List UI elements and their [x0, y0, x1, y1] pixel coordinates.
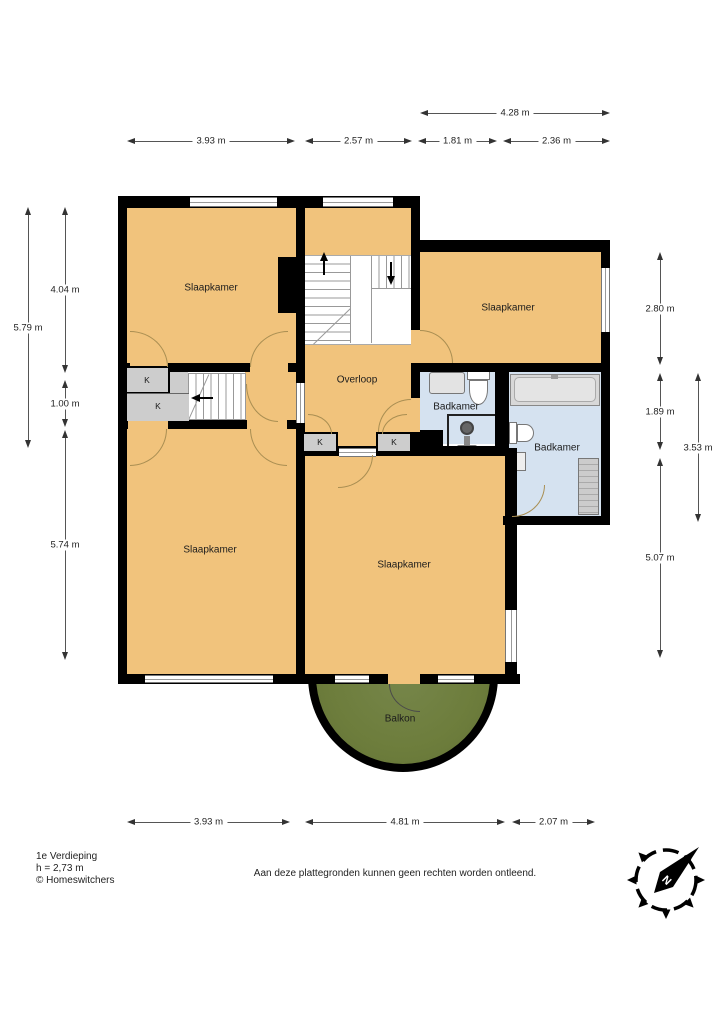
room-label-slaapkamer-bottom-center: Slaapkamer	[377, 560, 430, 571]
dimension-top-236: 2.36 m	[503, 136, 610, 146]
room-label-slaapkamer-top-left: Slaapkamer	[184, 283, 237, 294]
door-opening	[411, 398, 420, 432]
dimension-top-181: 1.81 m	[418, 136, 497, 146]
dimension-right-189: 1.89 m	[655, 373, 665, 450]
dimension-top-257: 2.57 m	[305, 136, 412, 146]
shower-head-icon	[460, 421, 474, 435]
window	[335, 675, 369, 683]
window	[190, 197, 277, 207]
dimension-left-579: 5.79 m	[23, 207, 33, 448]
passage-opening	[296, 383, 305, 423]
room-label-slaapkamer-top-right: Slaapkamer	[481, 303, 534, 314]
room-label-badkamer-small: Badkamer	[433, 402, 479, 413]
door-opening	[388, 674, 420, 684]
wall	[495, 363, 509, 453]
window	[438, 675, 474, 683]
window	[505, 610, 517, 662]
compass-needle	[654, 847, 699, 893]
disclaimer-text: Aan deze plattegronden kunnen geen recht…	[254, 868, 536, 879]
ceiling-height-note: h = 2,73 m	[36, 863, 84, 874]
dimension-left-404: 4.04 m	[60, 207, 70, 373]
floor-title: 1e Verdieping	[36, 851, 97, 862]
dimension-right-507: 5.07 m	[655, 458, 665, 658]
chimney-block	[278, 257, 305, 313]
dimension-right-353: 3.53 m	[693, 373, 703, 522]
bathtub-inner	[514, 377, 596, 402]
radiator	[578, 458, 599, 515]
bathtub-faucet	[551, 375, 558, 379]
door-opening	[247, 420, 287, 429]
toilet-tank	[509, 422, 517, 444]
closet-label: K	[155, 401, 161, 411]
compass-icon: N	[620, 832, 714, 926]
room-label-slaapkamer-bottom-left: Slaapkamer	[183, 545, 236, 556]
dimension-bottom-481: 4.81 m	[305, 817, 505, 827]
copyright-note: © Homeswitchers	[36, 875, 115, 886]
floorplan-canvas: Slaapkamer Slaapkamer Overloop Badkamer …	[0, 0, 724, 1024]
closet-label: K	[317, 437, 323, 447]
wall	[411, 363, 610, 372]
dimension-bottom-207: 2.07 m	[512, 817, 595, 827]
dimension-bottom-393: 3.93 m	[127, 817, 290, 827]
shower-wall-h	[447, 414, 495, 416]
side-stair-arrow-stem	[199, 397, 213, 399]
shower-stand	[464, 436, 470, 445]
wall	[503, 516, 610, 525]
door-opening	[411, 330, 420, 363]
dimension-top-428: 4.28 m	[420, 108, 610, 118]
window	[323, 197, 393, 207]
stair-landing	[350, 256, 372, 343]
stair-up-arrow-stem	[323, 260, 325, 275]
room-label-balkon: Balkon	[385, 714, 416, 725]
door-opening	[128, 420, 168, 429]
closet-label: K	[144, 375, 150, 385]
dimension-left-574: 5.74 m	[60, 430, 70, 660]
stair-down-arrow-stem	[390, 262, 392, 276]
window	[145, 675, 273, 683]
wall	[415, 240, 610, 252]
stair-down-arrow	[387, 276, 395, 285]
room-label-overloop: Overloop	[337, 375, 378, 386]
window	[601, 268, 610, 332]
closet-label: K	[391, 437, 397, 447]
wall	[118, 196, 127, 684]
dimension-left-100: 1.00 m	[60, 380, 70, 427]
toilet-tank	[467, 371, 490, 380]
sink	[429, 372, 465, 394]
room-label-badkamer-large: Badkamer	[534, 443, 580, 454]
dimension-top-393: 3.93 m	[127, 136, 295, 146]
toilet-bowl	[517, 424, 534, 442]
dimension-right-280: 2.80 m	[655, 252, 665, 365]
